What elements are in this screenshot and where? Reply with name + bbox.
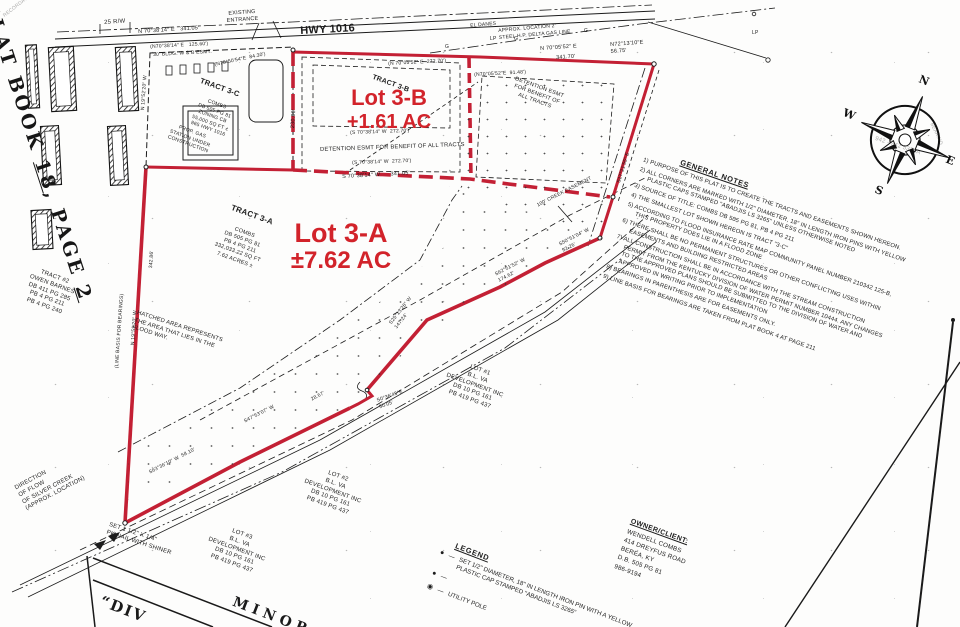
existing-entrance-label: EXISTING ENTRANCE	[226, 9, 259, 25]
rw-label: 25 R/W	[104, 19, 126, 28]
legend-symbol-icon: ●	[431, 570, 437, 578]
gas-marker: G	[445, 44, 449, 51]
distance: 341.70'	[556, 54, 576, 62]
gas-marker: G	[514, 36, 518, 43]
lot-3b-area: +1.61 AC	[333, 111, 445, 133]
gas-marker: G	[584, 28, 588, 35]
pole-marker: LP	[490, 36, 497, 43]
distance: 342.86'	[148, 250, 156, 268]
lot-3b-label: Lot 3-B +1.61 AC	[333, 86, 445, 133]
hwy-label: HWY 1016	[300, 21, 355, 38]
legend-dash: —	[447, 552, 456, 562]
legend-symbol-icon: ●	[439, 549, 445, 557]
legend-dash: —	[436, 587, 445, 597]
lot-3b-name: Lot 3-B	[333, 86, 445, 111]
legend-dash: —	[439, 573, 448, 583]
bearing: N72°13'10"E 56.75'	[610, 40, 644, 57]
legend-symbol-icon: ◉	[426, 583, 434, 592]
distance: 230.00'	[290, 109, 298, 129]
lot-3a-area: ±7.62 AC	[275, 248, 407, 275]
plat-sheet: HWY 1016EXISTING ENTRANCE25 R/WN 70°38'1…	[0, 0, 960, 627]
lot-3a-name: Lot 3-A	[275, 218, 407, 248]
gas-line	[430, 8, 775, 62]
pole-marker: LP	[752, 30, 759, 37]
lot-3a-label: Lot 3-A ±7.62 AC	[275, 218, 407, 275]
